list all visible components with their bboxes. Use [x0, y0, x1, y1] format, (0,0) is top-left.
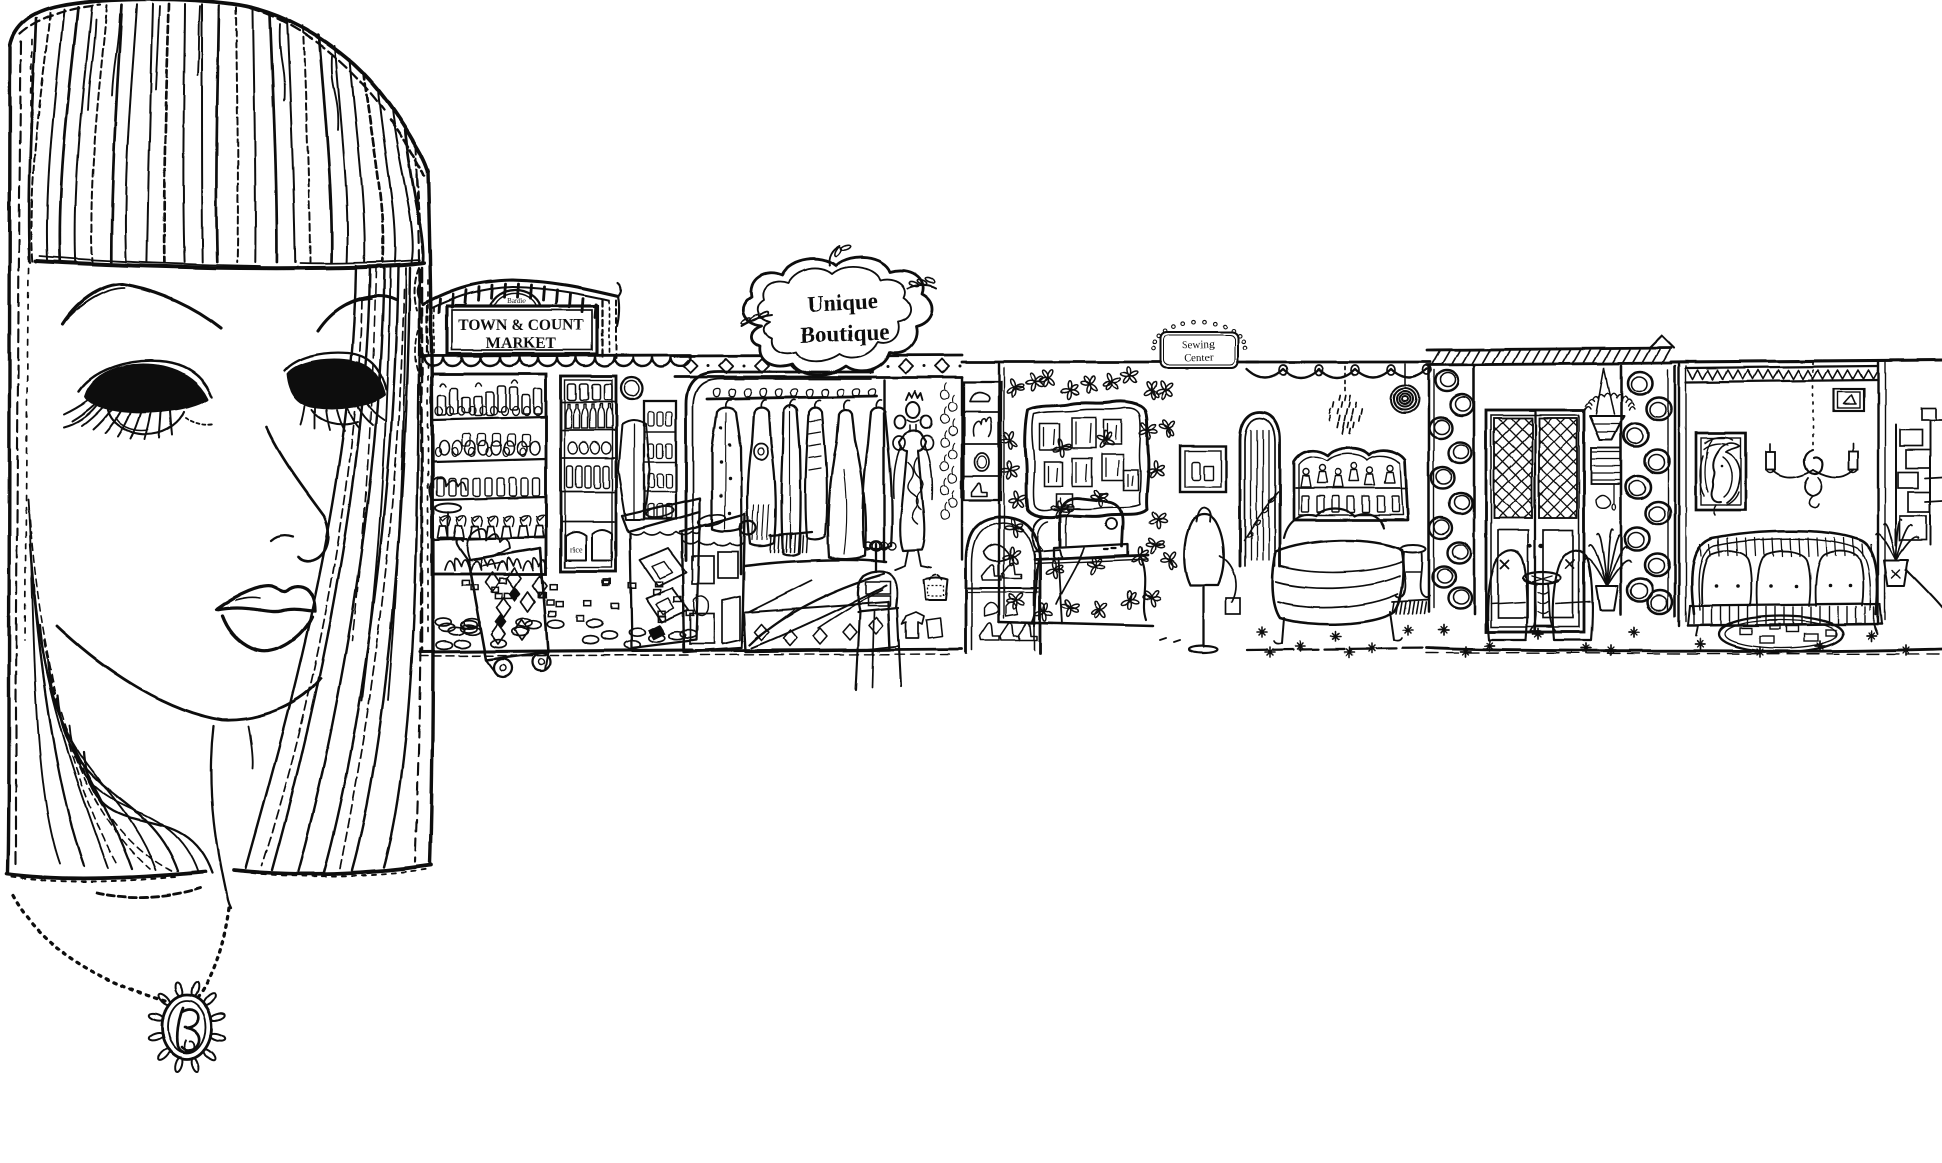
svg-text:Unique: Unique	[806, 288, 879, 317]
svg-text:Bardie: Bardie	[507, 297, 526, 305]
svg-text:Sewing: Sewing	[1181, 338, 1215, 351]
svg-text:Boutique: Boutique	[800, 319, 890, 347]
svg-text:MARKET: MARKET	[486, 335, 556, 352]
svg-text:rice: rice	[570, 545, 582, 554]
svg-text:TOWN & COUNT: TOWN & COUNT	[458, 317, 584, 334]
svg-text:Center: Center	[1184, 351, 1214, 364]
